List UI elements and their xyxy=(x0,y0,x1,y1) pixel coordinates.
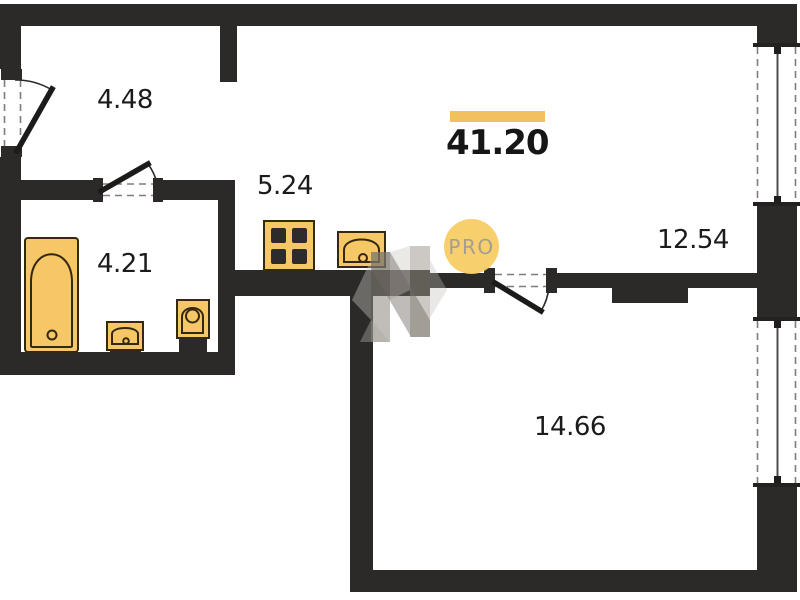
room-area-label-living: 12.54 xyxy=(657,227,729,254)
pro-watermark-badge: PRO xyxy=(444,219,499,274)
pro-watermark-text: PRO xyxy=(448,235,494,259)
room-area-label-hallway: 4.48 xyxy=(97,87,153,114)
room-area-label-room: 14.66 xyxy=(534,414,606,441)
stove xyxy=(264,221,314,270)
floor-plan: 41.20 4.48 4.21 5.24 12.54 14.66 PRO xyxy=(0,0,800,600)
window-right-bottom xyxy=(758,321,796,483)
total-area-label: 41.20 xyxy=(446,126,549,162)
window-right-top xyxy=(758,47,796,203)
bathtub xyxy=(25,238,78,352)
room-area-label-kitchen: 5.24 xyxy=(257,173,313,200)
sink xyxy=(107,322,143,362)
room-area-label-bathroom: 4.21 xyxy=(97,251,153,278)
bathroom-door xyxy=(93,164,163,202)
total-area-accent-bar xyxy=(450,111,545,122)
entry-door xyxy=(1,69,52,157)
room-door xyxy=(484,268,557,311)
toilet xyxy=(177,300,209,353)
